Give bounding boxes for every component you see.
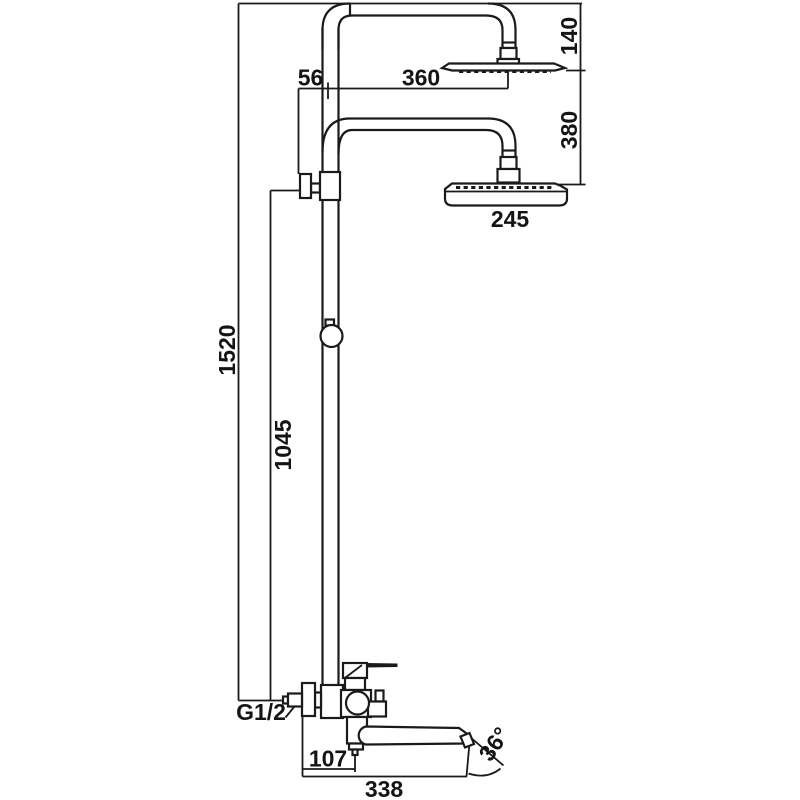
diverter-stem (376, 691, 384, 702)
lower-shower-arm (323, 119, 520, 183)
diverter-knob (368, 702, 386, 717)
thread-label-g12: G1/2 (236, 699, 286, 725)
lower-arm-inner-edge (339, 130, 503, 157)
cartridge-collar (345, 678, 365, 690)
upper-arm-inner-edge (339, 16, 503, 51)
upper-connector-nut (501, 48, 517, 59)
upper-arm-outer-left-curve (323, 4, 351, 51)
dim-label-1045: 1045 (270, 419, 296, 470)
dim-label-338: 338 (365, 776, 404, 800)
spray-angle-arc (469, 769, 501, 776)
shower-system-diagram: 56 360 140 380 245 1520 1045 G1/2 107 33… (0, 0, 800, 800)
faucet-inlet-elbow (321, 685, 343, 718)
upper-shower-arm (323, 4, 520, 66)
inlet-thread-fitting (288, 694, 302, 707)
spout-tube (359, 727, 468, 745)
spout-drain-tip (353, 750, 358, 756)
dim-label-360: 360 (402, 65, 440, 91)
technical-drawing-canvas: 56 360 140 380 245 1520 1045 G1/2 107 33… (0, 0, 800, 800)
wall-bracket (300, 172, 340, 200)
slider-knob-circle (321, 325, 343, 347)
dim-label-245: 245 (491, 206, 530, 232)
upper-shower-head (442, 64, 565, 72)
lower-arm-outer-edge (323, 119, 516, 158)
dim-label-1520: 1520 (214, 324, 240, 375)
valve-cap-circle (346, 692, 369, 715)
dim-label-107: 107 (309, 746, 347, 772)
dim-label-380: 380 (556, 111, 582, 149)
upper-head-disc (442, 64, 565, 71)
dim-label-140: 140 (556, 17, 582, 55)
bracket-wall-flange (300, 174, 311, 198)
faucet-wall-flange (302, 683, 315, 716)
spout (359, 727, 474, 748)
lower-connector-flange (498, 169, 520, 183)
angle-label-36: 36° (473, 722, 514, 765)
dim-label-56: 56 (298, 65, 324, 91)
spout-aerator (461, 733, 475, 748)
bracket-riser-clamp (320, 172, 340, 200)
lower-connector-nut (501, 157, 517, 169)
mixer-faucet (283, 663, 474, 755)
faucet-handle (343, 663, 398, 678)
bracket-pin (311, 184, 320, 193)
dimension-labels: 56 360 140 380 245 1520 1045 G1/2 107 33… (214, 17, 582, 800)
lower-shower-head (445, 184, 567, 206)
handle-lever (366, 663, 398, 668)
